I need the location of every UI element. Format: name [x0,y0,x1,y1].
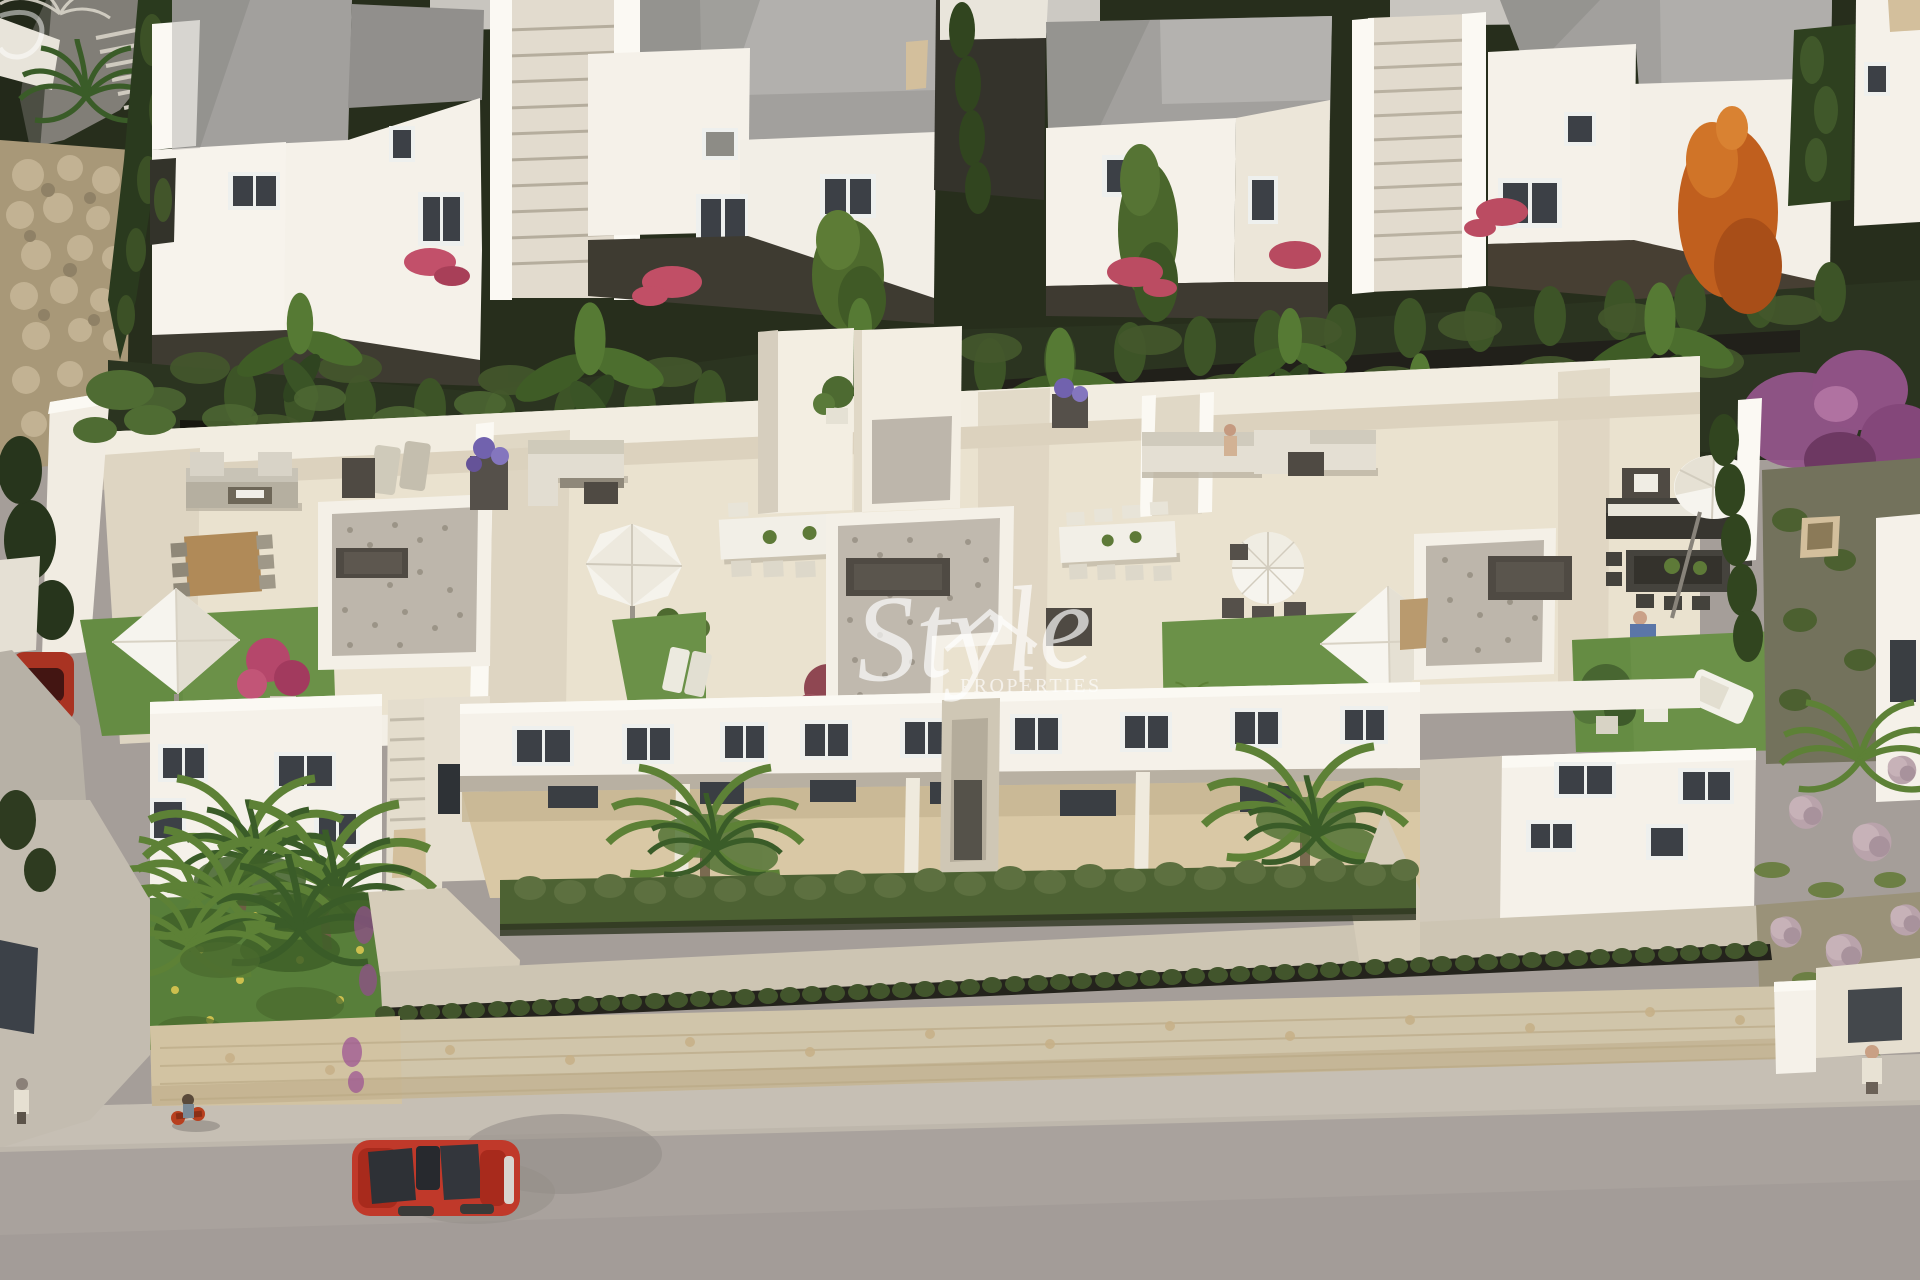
svg-text:PROPERTIES: PROPERTIES [960,675,1102,697]
